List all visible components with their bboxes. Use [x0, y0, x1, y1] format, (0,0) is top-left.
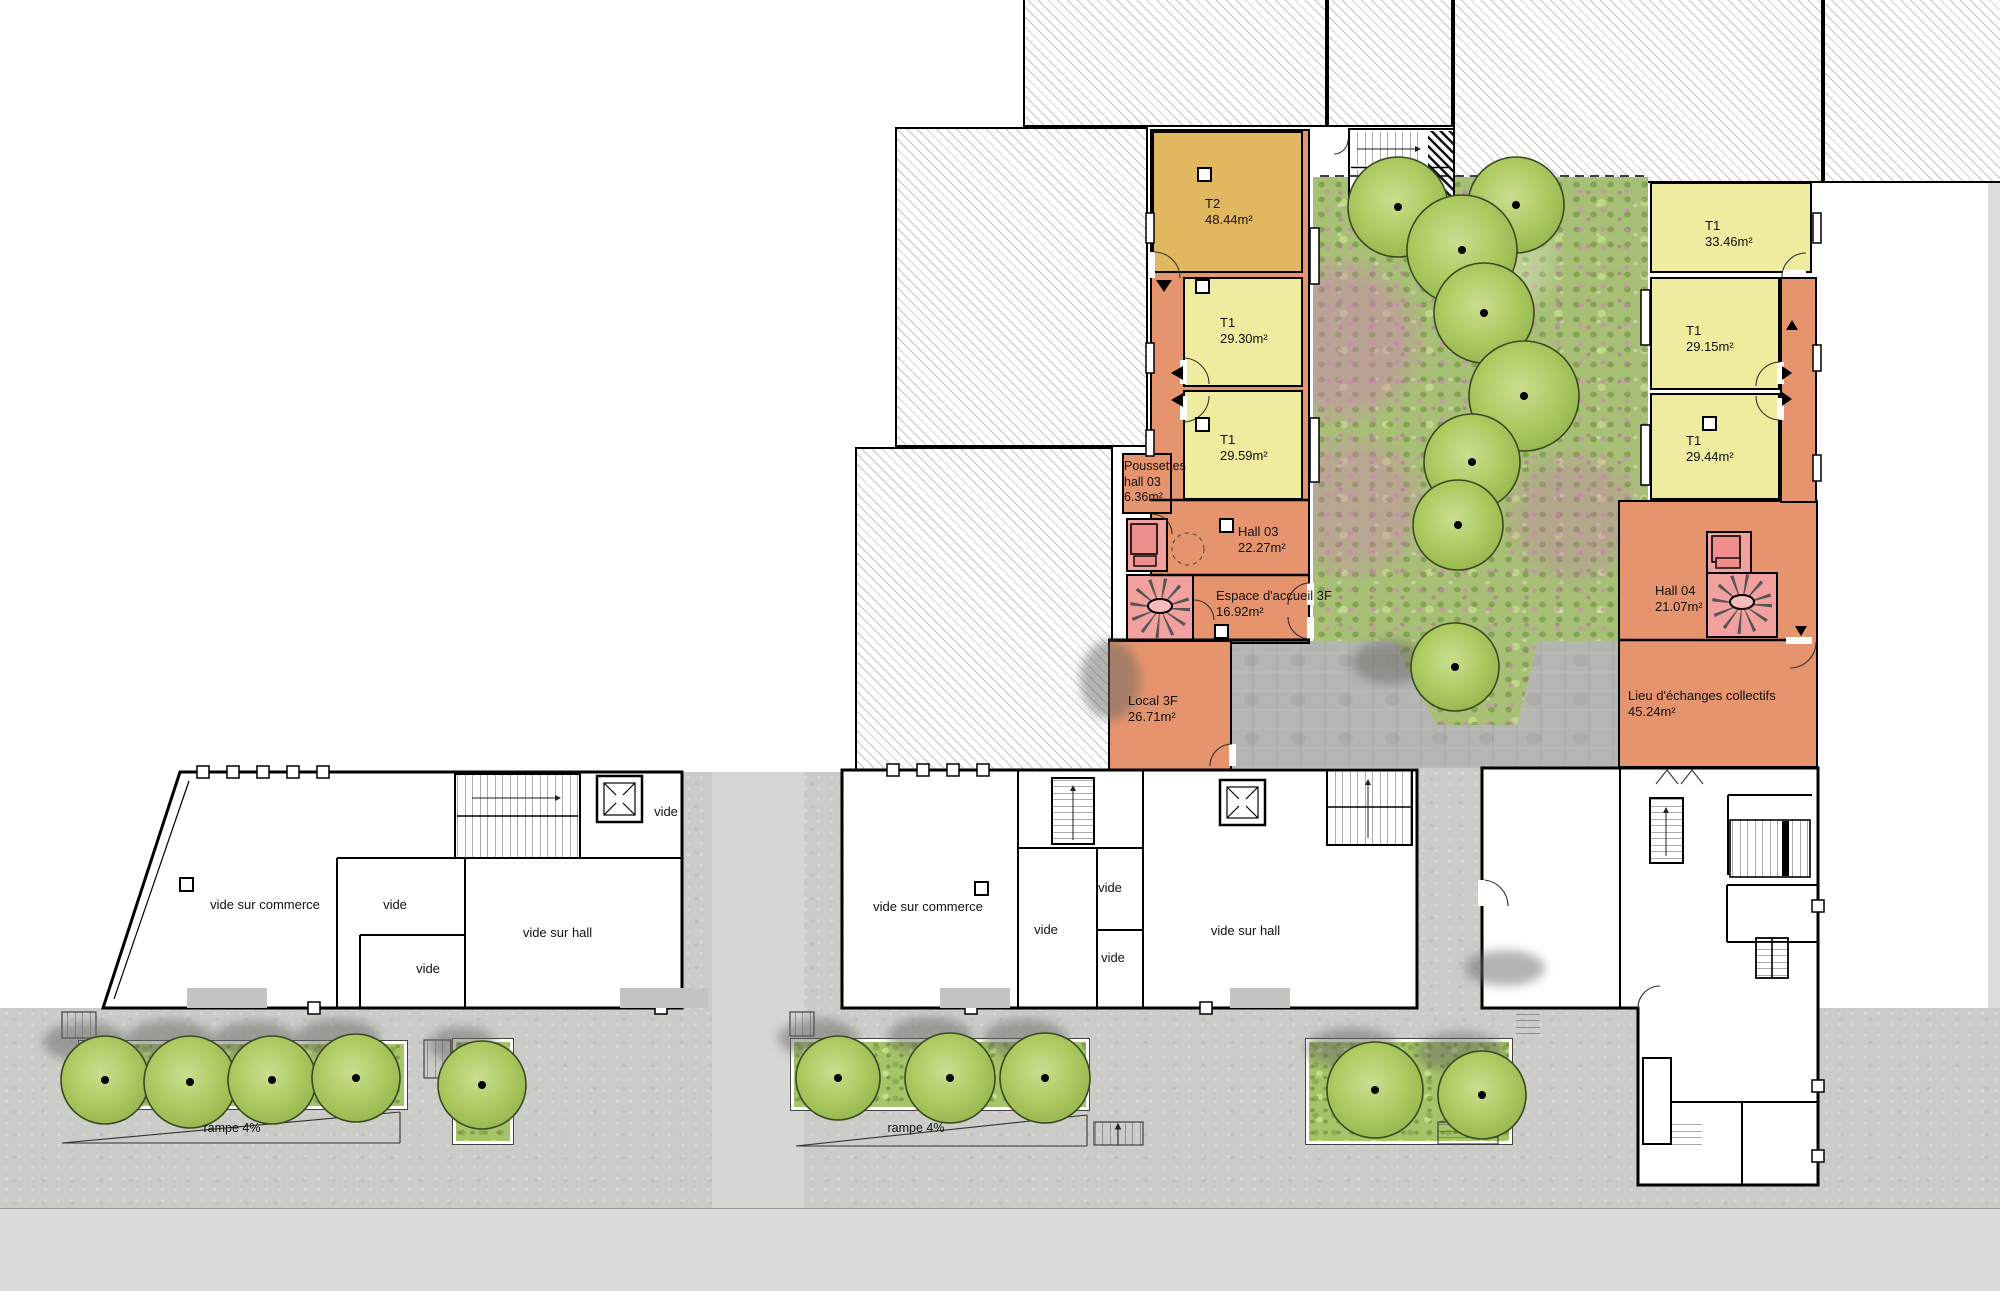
label-ramp: rampe 4%	[862, 1121, 970, 1137]
floor-plan: T248.44m² T129.30m² T129.59m² T133.46m² …	[0, 0, 2000, 1291]
tree-icon	[61, 1036, 149, 1124]
label-vide-sur-commerce: vide sur commerce	[175, 897, 355, 913]
tree-icon	[796, 1036, 880, 1120]
label-vide: vide	[1014, 922, 1078, 938]
tree-icon	[312, 1034, 400, 1122]
label-local-3f: Local 3F26.71m²	[1128, 693, 1178, 725]
tree-icon	[1413, 480, 1503, 570]
label-apartment-t1: T129.15m²	[1686, 323, 1734, 355]
label-vide: vide	[1081, 950, 1145, 966]
label-hall04: Hall 0421.07m²	[1655, 583, 1703, 615]
label-espace-accueil: Espace d'accueil 3F16.92m²	[1216, 588, 1332, 620]
label-vide-sur-hall: vide sur hall	[500, 925, 615, 941]
label-vide: vide	[640, 804, 692, 820]
tree-icon	[1000, 1033, 1090, 1123]
label-apartment-t1: T129.30m²	[1220, 315, 1268, 347]
tree-icon	[228, 1036, 316, 1124]
label-vide: vide	[363, 897, 427, 913]
tree-icon	[1327, 1042, 1423, 1138]
label-lieu-echanges: Lieu d'échanges collectifs45.24m²	[1628, 688, 1776, 720]
label-vide: vide	[1078, 880, 1142, 896]
label-ramp: rampe 4%	[178, 1121, 286, 1137]
label-vide: vide	[396, 961, 460, 977]
tree-icon	[1411, 623, 1499, 711]
tree-icon	[144, 1036, 236, 1128]
label-poussettes: Poussetteshall 036.36m²	[1124, 459, 1186, 506]
label-hall03: Hall 0322.27m²	[1238, 524, 1286, 556]
label-apartment-t2: T248.44m²	[1205, 196, 1253, 228]
tree-icon	[438, 1041, 526, 1129]
label-vide-sur-commerce: vide sur commerce	[838, 899, 1018, 915]
label-apartment-t1: T129.59m²	[1220, 432, 1268, 464]
tree-icon	[1438, 1051, 1526, 1139]
turning-circle	[1172, 533, 1204, 565]
label-vide-sur-hall: vide sur hall	[1188, 923, 1303, 939]
tree-icon	[905, 1033, 995, 1123]
plan-linework	[0, 0, 2000, 1291]
label-apartment-t1: T129.44m²	[1686, 433, 1734, 465]
label-apartment-t1: T133.46m²	[1705, 218, 1753, 250]
